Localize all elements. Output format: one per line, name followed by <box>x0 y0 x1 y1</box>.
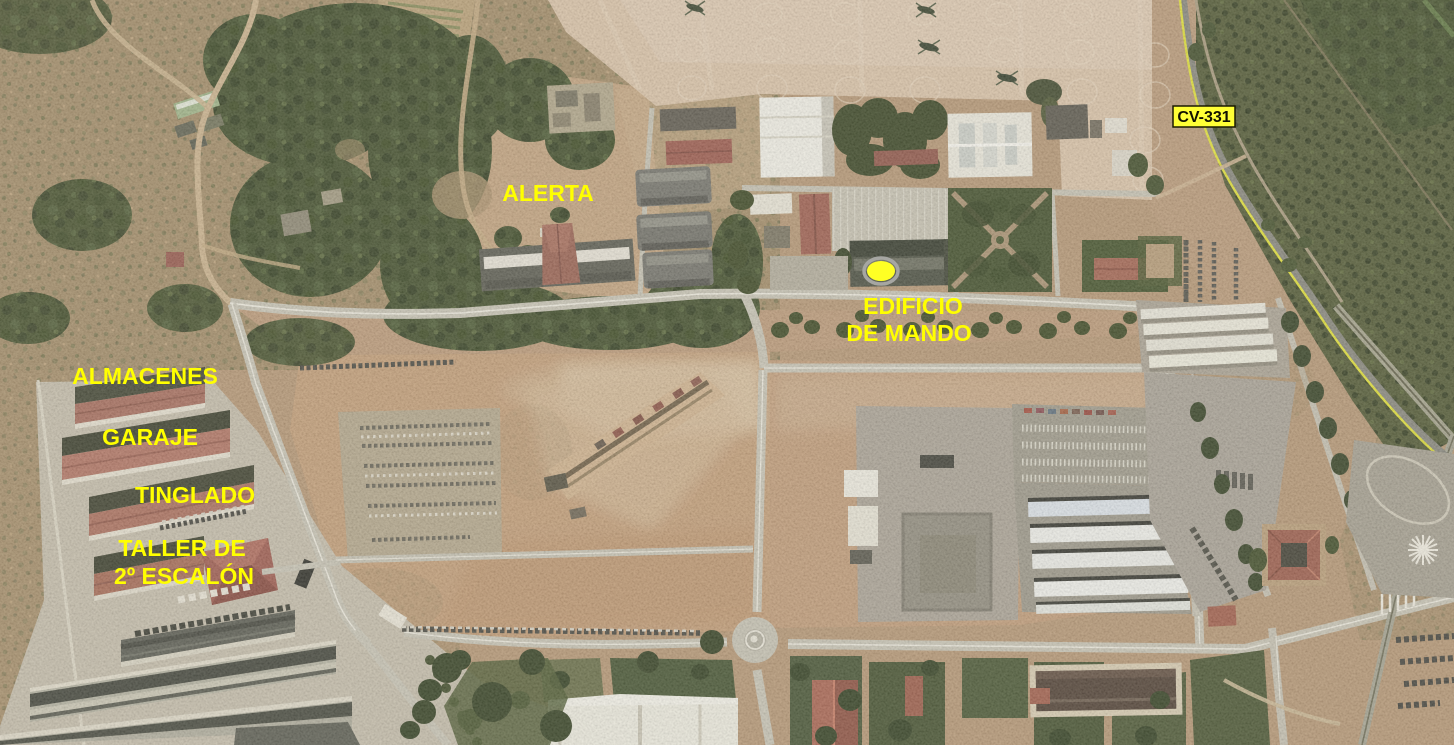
svg-text:DE MANDO: DE MANDO <box>846 320 971 346</box>
svg-text:GARAJE: GARAJE <box>102 424 198 450</box>
svg-text:TALLER DE: TALLER DE <box>118 535 245 561</box>
svg-text:ALMACENES: ALMACENES <box>72 363 218 389</box>
svg-text:ALERTA: ALERTA <box>502 180 594 206</box>
svg-text:TINGLADO: TINGLADO <box>135 482 255 508</box>
svg-text:EDIFICIO: EDIFICIO <box>863 293 963 319</box>
svg-text:CV-331: CV-331 <box>1177 109 1230 126</box>
svg-text:2º ESCALÓN: 2º ESCALÓN <box>114 562 254 589</box>
